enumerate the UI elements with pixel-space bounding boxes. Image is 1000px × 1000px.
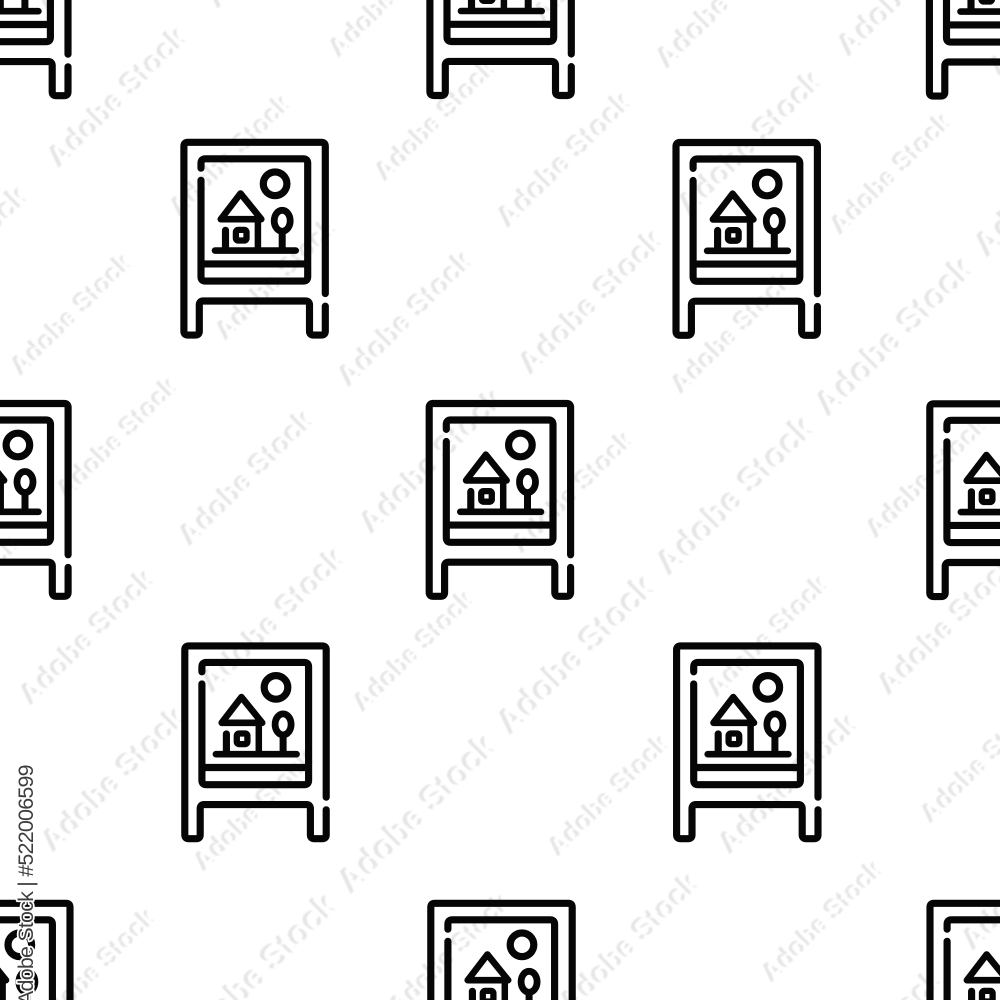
svg-text:Adobe Stock | #522006599: Adobe Stock | #522006599 — [14, 765, 38, 1000]
